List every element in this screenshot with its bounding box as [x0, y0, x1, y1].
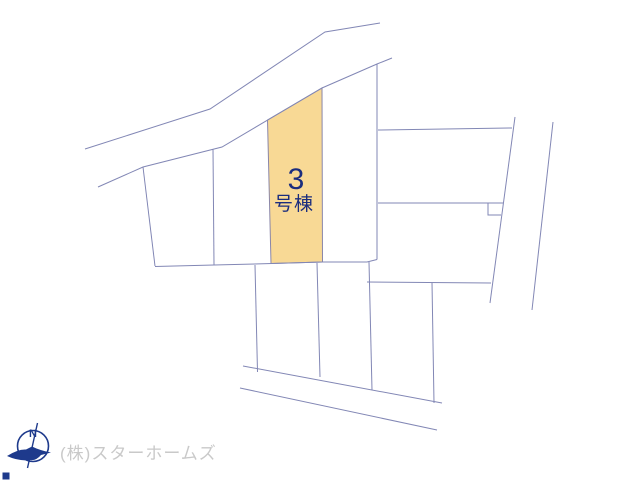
lower-row-divider-2	[317, 263, 320, 377]
left-lot-left-edge	[143, 167, 155, 266]
lot-number-label: 3	[288, 163, 305, 196]
site-plan-page: 3 号棟 N (株)スターホームズ	[0, 0, 640, 480]
right-road-edge-outer	[532, 122, 553, 310]
lot-divider-1	[213, 149, 214, 265]
lot-row-bottom-boundary	[155, 260, 377, 267]
lower-row-h-line	[367, 282, 491, 283]
lot-row-top-boundary	[98, 58, 392, 187]
lot-suffix-label: 号棟	[274, 193, 314, 215]
north-compass-icon: N	[3, 423, 52, 480]
site-plan-drawing: 3 号棟 N (株)スターホームズ	[0, 0, 640, 480]
compass-bird-shape	[7, 447, 51, 461]
compass-corner-mark	[3, 473, 10, 480]
right-block-notch	[488, 203, 501, 215]
compass-north-letter: N	[29, 428, 37, 440]
lower-row-divider-1	[255, 265, 258, 372]
right-block-h-line-upper	[378, 128, 512, 130]
bottom-road-lower-edge	[240, 388, 437, 430]
lower-row-divider-3	[369, 262, 372, 390]
company-name-watermark: (株)スターホームズ	[60, 444, 217, 463]
bottom-road-upper-edge	[243, 366, 442, 403]
top-road-upper-edge	[85, 23, 380, 149]
lower-row-divider-4	[432, 283, 434, 404]
right-road-edge-inner	[490, 117, 515, 303]
